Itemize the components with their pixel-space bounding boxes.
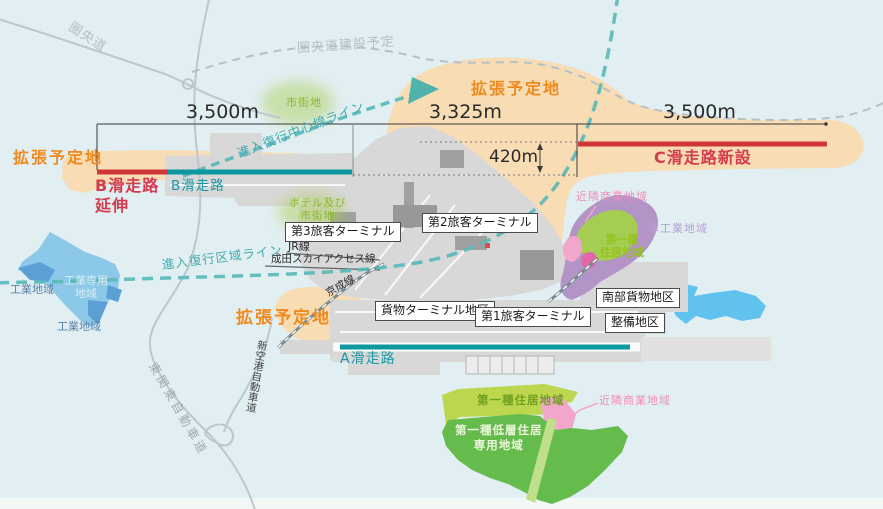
industrial-label-1: 工業地域: [10, 283, 54, 296]
urban-area-label: 市街地: [286, 96, 322, 109]
hotel-urban-line2: 市街地: [301, 210, 336, 222]
semi-industrial-label: 準工業地域: [648, 222, 708, 235]
residential1-ne-line1: 第一種: [606, 233, 639, 246]
low-rise-line1: 第一種低層住居: [455, 423, 543, 437]
maintenance-box: 整備地区: [605, 313, 665, 333]
residential1-ne-line2: 住居地域: [600, 246, 644, 259]
b-runway-extension-line2: 延伸: [95, 196, 129, 215]
residential1-label-ne: 第一種 住居地域: [600, 233, 644, 259]
low-rise-residential-label: 第一種低層住居 専用地域: [455, 423, 543, 453]
industrial-exclusive-line1: 工業専用: [64, 274, 108, 287]
sky-access-label: 成田スカイアクセス線: [271, 253, 375, 266]
b-runway-extension-line1: B滑走路: [95, 176, 159, 195]
measure-c-3500m: 3,500m: [663, 101, 736, 124]
expansion-label-west: 拡張予定地: [13, 148, 103, 168]
expansion-label-northeast: 拡張予定地: [471, 79, 561, 99]
measure-b-3500m: 3,500m: [186, 101, 259, 124]
shin-kuko-expwy-road: [224, 318, 272, 432]
hotel-urban-line1: ホテル及び: [289, 197, 347, 209]
measure-3325m: 3,325m: [429, 101, 502, 124]
terminal3-box: 第3旅客ターミナル: [285, 222, 401, 242]
shoreline-strip: [0, 498, 883, 509]
measure-420m: 420m: [489, 147, 538, 168]
c-runway-new-label: C滑走路新設: [654, 148, 752, 168]
low-rise-line2: 専用地域: [474, 438, 524, 452]
airport-expansion-map: 圏央道 圏央道建設予定 3,500m 3,325m 3,500m 420m 拡張…: [0, 0, 883, 509]
industrial-exclusive-label: 工業専用 地域: [64, 275, 108, 300]
b-runway-label: B滑走路: [171, 178, 225, 194]
b-runway-extension-label: B滑走路 延伸: [95, 176, 159, 215]
hotel-urban-label: ホテル及び 市街地: [289, 197, 347, 223]
industrial-exclusive-line2: 地域: [75, 287, 97, 300]
industrial-label-2: 工業地域: [57, 320, 101, 333]
map-canvas: [0, 0, 883, 509]
south-cargo-box: 南部貨物地区: [596, 288, 680, 308]
expansion-label-south: 拡張予定地: [236, 308, 331, 329]
a-runway-label: A滑走路: [340, 351, 396, 368]
neighborhood-commercial-label-ne: 近隣商業地域: [576, 190, 648, 203]
terminal2-box: 第2旅客ターミナル: [422, 213, 538, 233]
residential1-label-south: 第一種住居地域: [477, 393, 565, 407]
jr-line-label: JR線: [288, 240, 310, 253]
neighborhood-commercial-label-south: 近隣商業地域: [599, 394, 671, 407]
terminal1-box: 第1旅客ターミナル: [475, 307, 591, 327]
apron-grid: [466, 356, 554, 374]
